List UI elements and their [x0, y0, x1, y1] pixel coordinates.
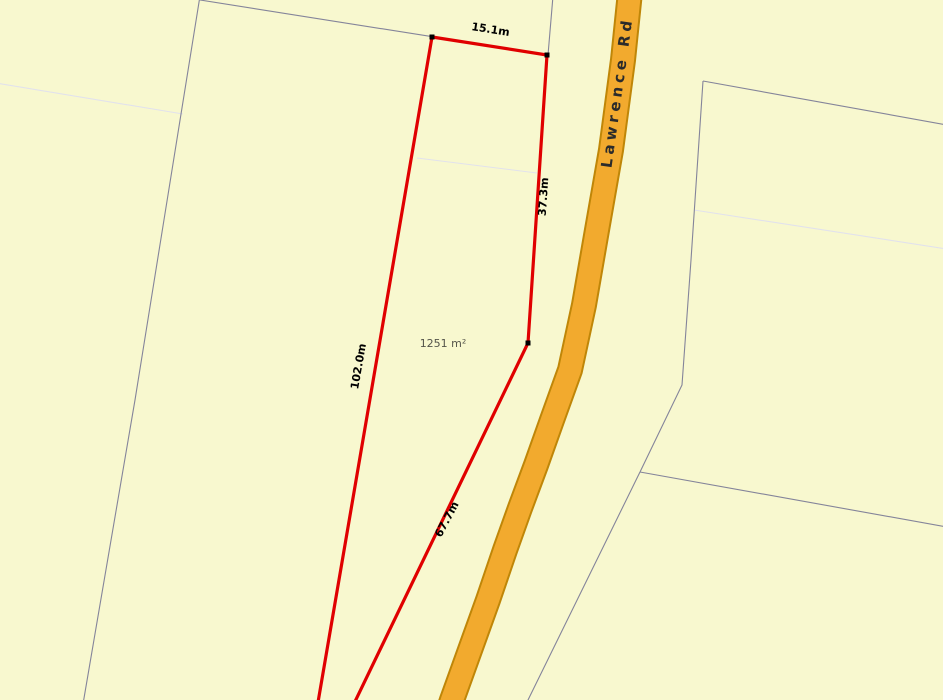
vertex-marker-middle-right [526, 341, 531, 346]
dimension-label-right: 37.3m [536, 177, 552, 216]
map-svg: Lawrence Rd 15.1m 37.3m 102.0m 67.7m 125… [0, 0, 943, 700]
vertex-marker-top-right [545, 53, 550, 58]
map-background [0, 0, 943, 700]
vertex-marker-top-left [430, 35, 435, 40]
map-canvas[interactable]: Lawrence Rd 15.1m 37.3m 102.0m 67.7m 125… [0, 0, 943, 700]
parcel-area-label: 1251 m² [420, 337, 467, 350]
